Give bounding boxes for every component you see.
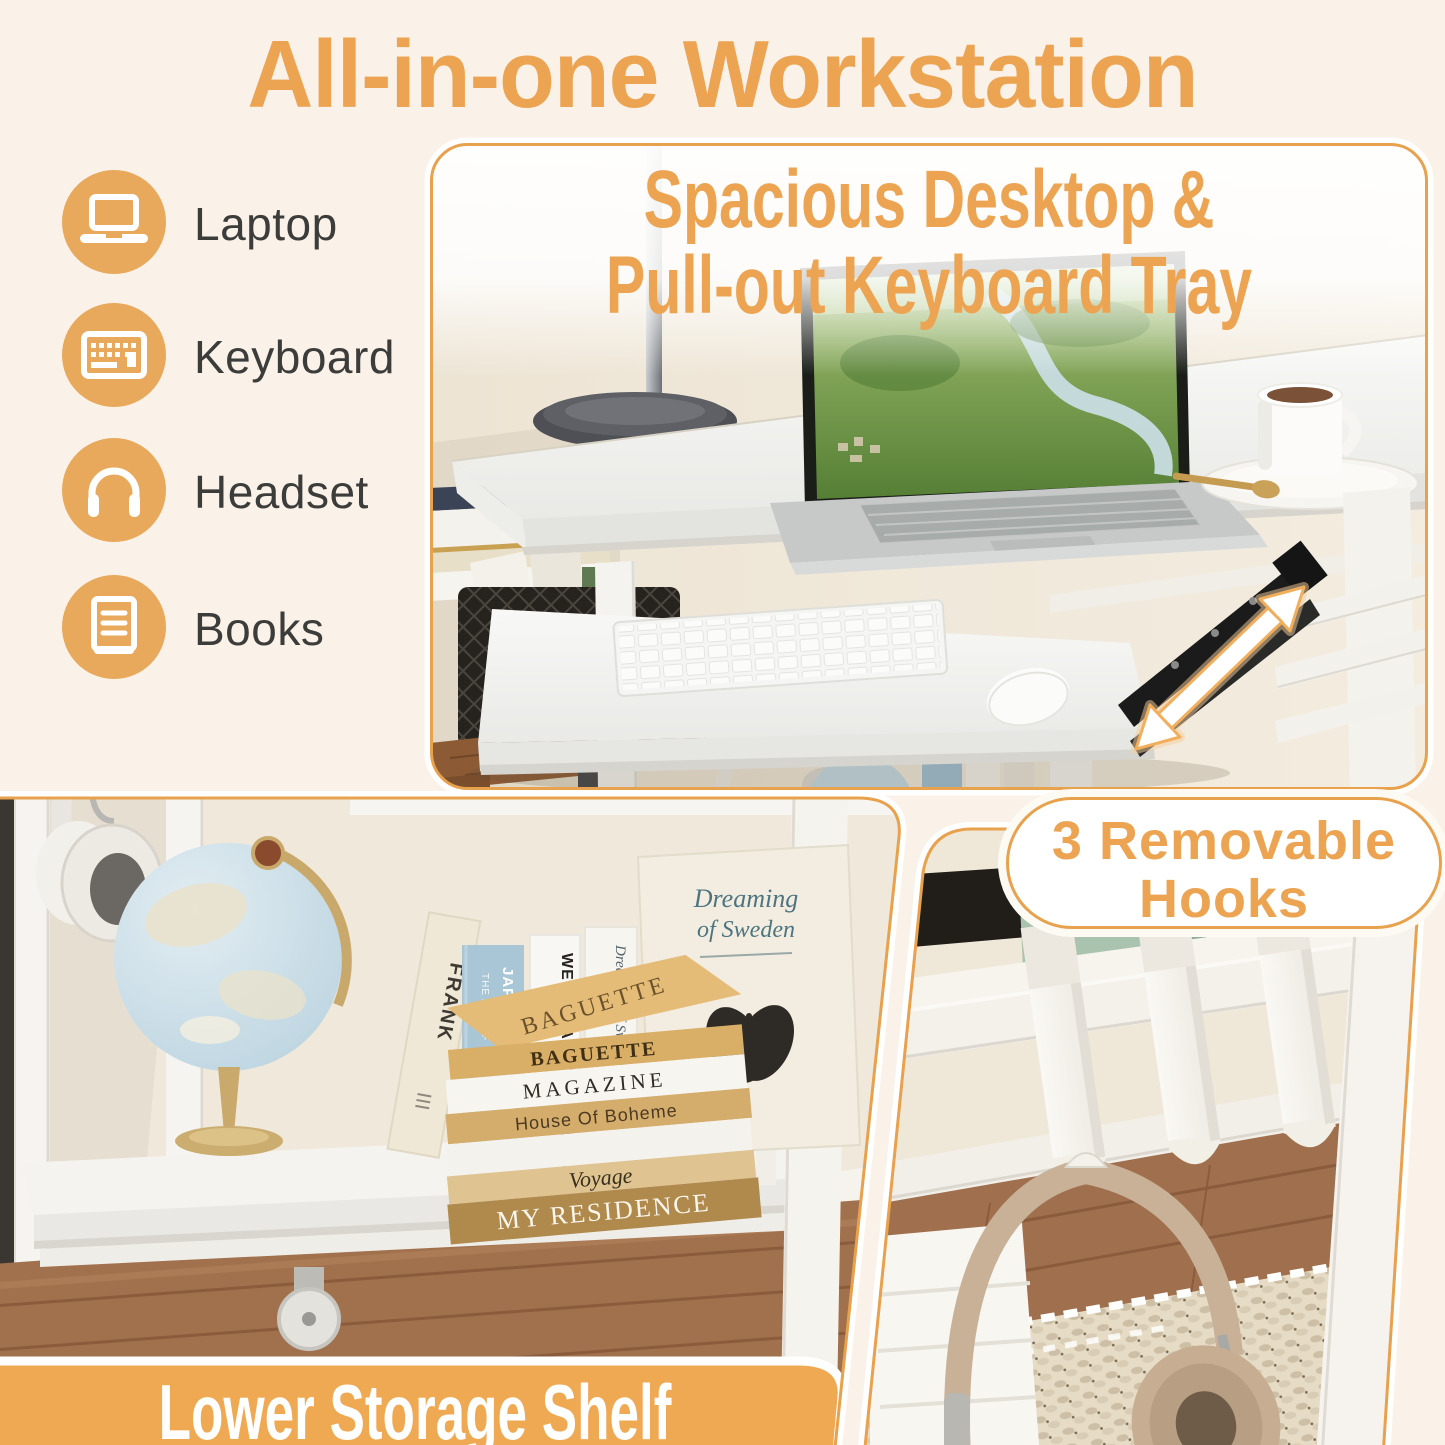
book-icon: [62, 575, 166, 684]
cover-title-line2: of Sweden: [697, 917, 795, 943]
panel-desktop: Spacious Desktop & Pull-out Keyboard Tra…: [430, 143, 1428, 790]
feature-item-keyboard: Keyboard: [62, 305, 395, 409]
desktop-panel-title-line1: Spacious Desktop &: [570, 159, 1289, 241]
feature-label: Laptop: [194, 197, 338, 251]
shelf-photo: Dreaming of Sweden: [0, 783, 922, 1445]
laptop-icon: [62, 170, 166, 279]
panel-hooks: 3 Removable Hooks: [870, 795, 1445, 1445]
hooks-title-line1: 3 Removable: [1009, 814, 1439, 868]
infographic-canvas: All-in-one Workstation Laptop: [0, 0, 1445, 1445]
feature-label: Headset: [194, 465, 369, 519]
shelf-caption: Lower Storage Shelf: [140, 1369, 691, 1445]
headset-icon: [62, 438, 166, 547]
cover-title-line1: Dreaming: [693, 884, 798, 913]
feature-label: Keyboard: [194, 330, 395, 384]
feature-item-laptop: Laptop: [62, 172, 338, 276]
hooks-title-pill: 3 Removable Hooks: [1006, 797, 1442, 929]
page-title: All-in-one Workstation: [36, 20, 1409, 130]
panel-shelf: Dreaming of Sweden: [0, 795, 910, 1445]
hooks-title-line2: Hooks: [1009, 872, 1439, 926]
keyboard-icon: [62, 303, 166, 412]
feature-item-headset: Headset: [62, 440, 369, 544]
desktop-panel-title-line2: Pull-out Keyboard Tray: [570, 245, 1289, 327]
feature-label: Books: [194, 602, 324, 656]
feature-item-books: Books: [62, 577, 324, 681]
